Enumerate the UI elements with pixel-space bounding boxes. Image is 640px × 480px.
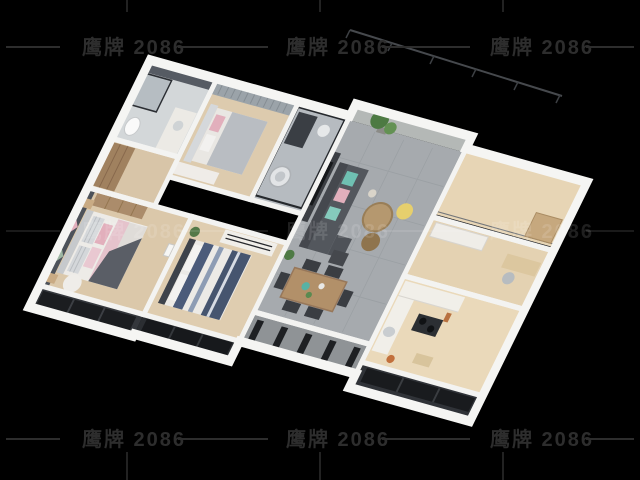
- floorplan-svg: 鹰牌 2086鹰牌 2086鹰牌 2086鹰牌 2086鹰牌 2086鹰牌 20…: [0, 0, 640, 480]
- watermark-text: 鹰牌 2086: [82, 35, 186, 59]
- watermark-text-faint: 鹰牌 2086: [82, 219, 186, 243]
- watermark-text-faint: 鹰牌 2086: [490, 219, 594, 243]
- watermark-text-faint: 鹰牌 2086: [286, 219, 390, 243]
- watermark-text: 鹰牌 2086: [490, 35, 594, 59]
- watermark-text: 鹰牌 2086: [82, 427, 186, 451]
- floorplan-render: 鹰牌 2086鹰牌 2086鹰牌 2086鹰牌 2086鹰牌 2086鹰牌 20…: [0, 0, 640, 480]
- watermark-text: 鹰牌 2086: [286, 35, 390, 59]
- watermark-text: 鹰牌 2086: [490, 427, 594, 451]
- watermark-text: 鹰牌 2086: [286, 427, 390, 451]
